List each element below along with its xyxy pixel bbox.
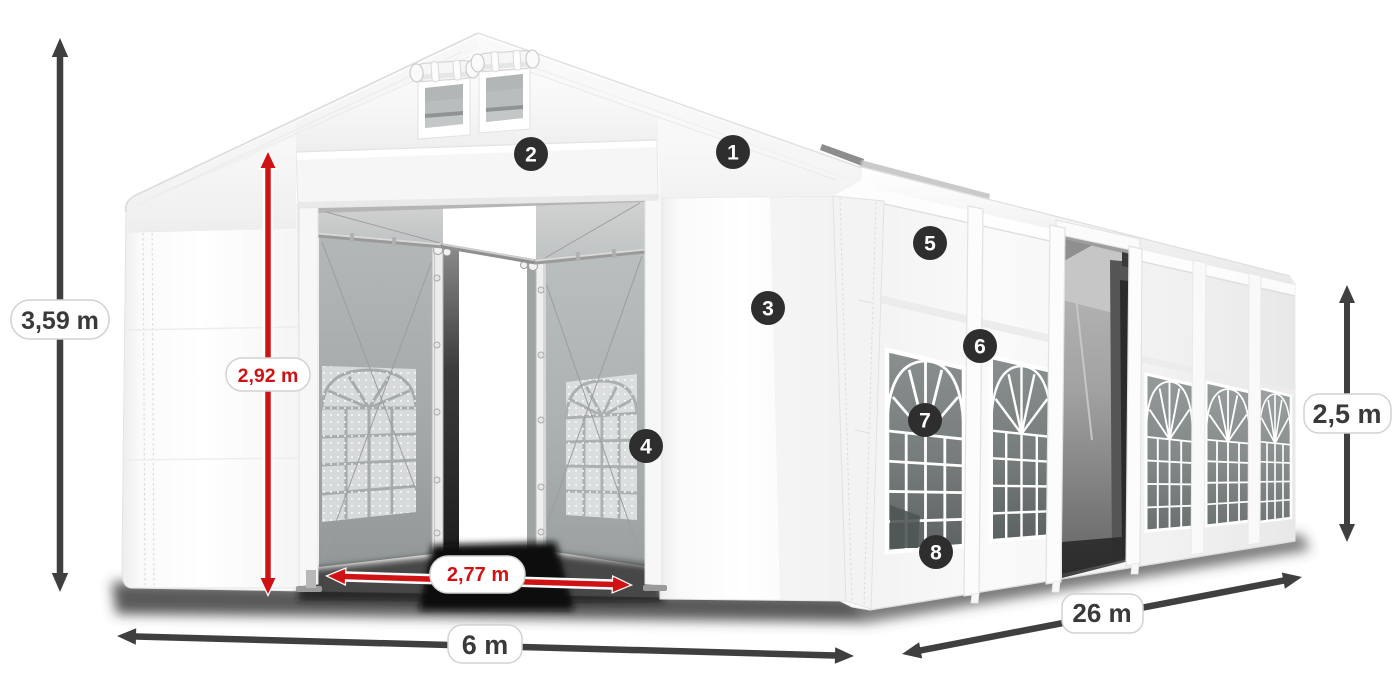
svg-text:8: 8 [930, 542, 942, 565]
svg-text:6 m: 6 m [462, 630, 509, 660]
svg-text:7: 7 [919, 410, 931, 433]
svg-text:3,59 m: 3,59 m [21, 307, 99, 335]
svg-text:3: 3 [762, 298, 774, 321]
svg-text:4: 4 [640, 436, 652, 459]
svg-text:2,92 m: 2,92 m [238, 365, 299, 387]
svg-text:6: 6 [974, 336, 986, 359]
svg-text:2: 2 [525, 144, 537, 167]
svg-text:2,5 m: 2,5 m [1312, 399, 1381, 429]
svg-text:2,77 m: 2,77 m [447, 564, 509, 586]
svg-text:5: 5 [924, 233, 936, 256]
svg-text:1: 1 [727, 142, 739, 165]
svg-text:26 m: 26 m [1072, 598, 1131, 628]
